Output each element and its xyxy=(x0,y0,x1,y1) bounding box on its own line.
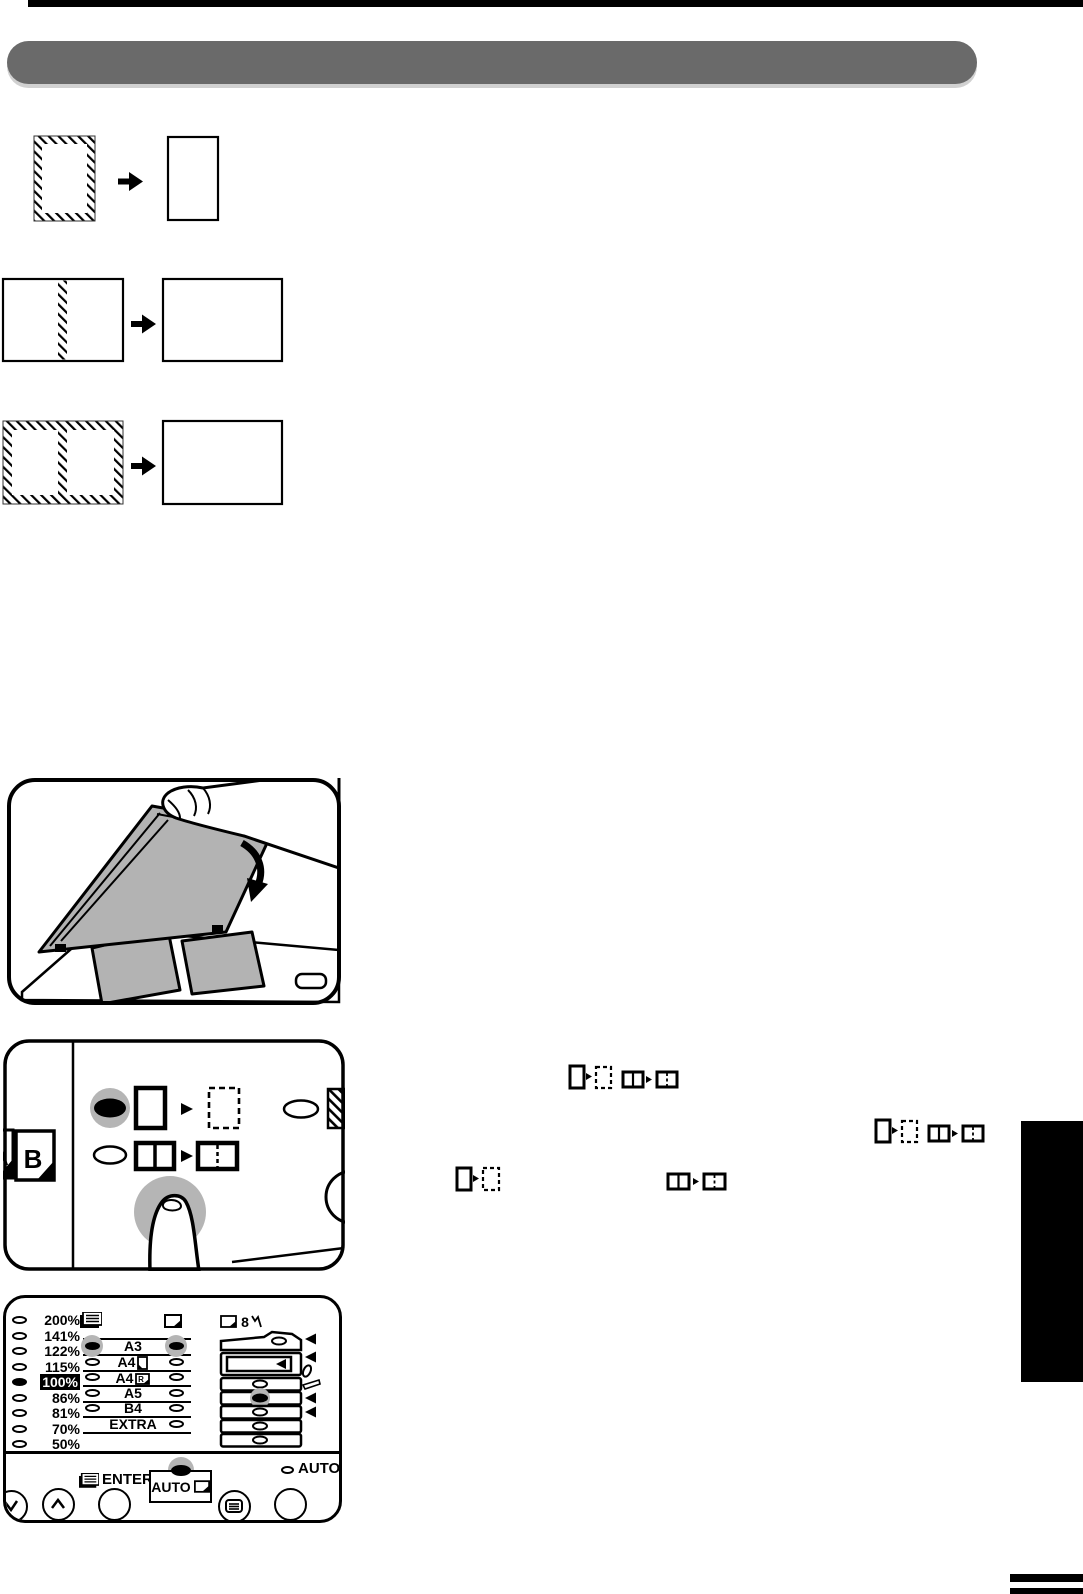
led-indicator-on xyxy=(252,1394,268,1403)
footer-rule-1 xyxy=(1010,1574,1083,1582)
ratio-row-50: 50% xyxy=(12,1436,80,1452)
led-indicator xyxy=(253,1381,267,1388)
cover-closing-illustration xyxy=(7,778,341,1005)
portrait-sheet-icon xyxy=(137,1356,148,1370)
led-indicator xyxy=(12,1440,27,1448)
size-label-b4: B4 xyxy=(98,1401,168,1416)
paper-select-button[interactable] xyxy=(218,1490,251,1523)
arrow-right-icon xyxy=(952,1130,958,1137)
ratio-row-122: 122% xyxy=(12,1343,80,1359)
tray-marker-icon xyxy=(305,1407,316,1418)
ratio-panel: 200% 141% 122% 115% 100% 86% 81% 70% 50% xyxy=(3,1295,342,1523)
arrow-right-icon xyxy=(473,1175,479,1182)
diagram-book-spread-margins xyxy=(3,421,282,504)
original-sheet-front-icon: B xyxy=(16,1131,54,1180)
manual-page: A B xyxy=(0,0,1083,1594)
solid-portrait-page-icon xyxy=(876,1120,890,1142)
led-indicator xyxy=(253,1437,267,1444)
solid-portrait-page-icon xyxy=(570,1066,584,1088)
svg-text:R: R xyxy=(139,1375,145,1384)
led-indicator-on xyxy=(94,1099,126,1118)
inline-mode-icons-3a xyxy=(453,1164,505,1194)
led-indicator xyxy=(169,1420,184,1428)
copy-transform-diagrams xyxy=(0,120,300,520)
led-indicator-off xyxy=(94,1147,126,1164)
dashed-portrait-page-icon xyxy=(902,1121,917,1142)
solid-portrait-page-icon xyxy=(457,1168,471,1190)
panel-divider xyxy=(6,1451,339,1454)
inline-mode-icons-2 xyxy=(872,1116,988,1146)
chevron-down-icon xyxy=(3,1492,25,1520)
solid-portrait-page-icon xyxy=(136,1088,165,1128)
led-indicator xyxy=(169,1358,184,1366)
tray-marker-icon xyxy=(305,1393,316,1404)
led-indicator-on xyxy=(171,1465,191,1476)
chapter-tab xyxy=(1021,1121,1083,1382)
side-handle xyxy=(303,1380,320,1389)
led-indicator xyxy=(281,1466,294,1474)
tray-marker-icon xyxy=(305,1352,316,1363)
auto-ratio-button[interactable] xyxy=(274,1488,307,1521)
size-label-a4: A4 xyxy=(98,1355,168,1370)
section-header-bar xyxy=(7,41,977,84)
led-indicator xyxy=(12,1425,27,1433)
original-document-icon xyxy=(79,1473,99,1488)
led-indicator xyxy=(253,1409,267,1416)
ratio-label: 86% xyxy=(52,1390,80,1406)
size-label-a4r: A4 R xyxy=(98,1371,168,1386)
arrow-icon xyxy=(131,315,156,334)
display-tray xyxy=(221,1353,301,1375)
led-indicator xyxy=(169,1373,184,1381)
ratio-label: 115% xyxy=(45,1359,80,1375)
ratio-row-81: 81% xyxy=(12,1405,80,1421)
bypass-tray xyxy=(221,1332,301,1350)
arrow-icon xyxy=(118,172,143,191)
tray-marker-icon xyxy=(305,1334,316,1345)
copy-paper-icon xyxy=(164,1314,182,1328)
led-indicator xyxy=(253,1423,267,1430)
ratio-row-100-selected: 100% xyxy=(12,1374,80,1390)
led-indicator-off xyxy=(284,1101,318,1118)
inline-mode-icons-1 xyxy=(566,1062,681,1092)
led-indicator xyxy=(12,1347,27,1355)
arrow-right-icon xyxy=(892,1127,898,1134)
ratio-label: 122% xyxy=(44,1343,80,1359)
diagram-book-spread xyxy=(3,279,282,361)
tray-stack-diagram: 8 xyxy=(206,1308,342,1453)
ratio-down-button[interactable] xyxy=(3,1490,28,1523)
ratio-row-70: 70% xyxy=(12,1421,80,1437)
inline-mode-icons-3b xyxy=(664,1170,728,1194)
enter-label: ENTER xyxy=(102,1471,153,1488)
auto-ratio-label: AUTO % xyxy=(298,1460,342,1477)
dashed-portrait-page-icon xyxy=(483,1168,499,1190)
original-document-icon xyxy=(80,1312,102,1328)
size-label-extra: EXTRA xyxy=(98,1417,168,1432)
led-indicator xyxy=(12,1332,27,1340)
ratio-label: 200% xyxy=(44,1312,80,1328)
led-indicator xyxy=(169,1389,184,1397)
arrow-right-icon xyxy=(586,1073,592,1080)
size-label-a5: A5 xyxy=(98,1386,168,1401)
ratio-label: 50% xyxy=(52,1436,80,1452)
led-indicator xyxy=(12,1316,27,1324)
tray-select-icon xyxy=(220,1492,248,1520)
dashed-portrait-page-icon xyxy=(209,1088,239,1128)
table-rule xyxy=(83,1432,191,1434)
led-indicator xyxy=(12,1394,27,1402)
paper-tray-3 xyxy=(221,1406,301,1419)
ratio-label: 70% xyxy=(52,1421,80,1437)
ratio-label: 141% xyxy=(44,1328,80,1344)
led-indicator xyxy=(12,1363,27,1371)
led-indicator xyxy=(272,1338,286,1345)
led-indicator-on xyxy=(169,1342,184,1350)
dashed-portrait-page-icon xyxy=(596,1067,611,1088)
footer-rule-2 xyxy=(1010,1588,1083,1594)
bypass-feed-icon: 8 xyxy=(221,1314,261,1330)
side-led xyxy=(301,1364,312,1378)
diagram-portrait-original xyxy=(34,136,218,221)
enter-button[interactable] xyxy=(98,1488,131,1521)
ratio-row-86: 86% xyxy=(12,1390,80,1406)
size-label-a3: A3 xyxy=(98,1339,168,1354)
paper-tray-5 xyxy=(221,1434,301,1447)
dual-page-mode-panel: A B xyxy=(3,1039,345,1271)
ratio-up-button[interactable] xyxy=(42,1488,75,1521)
chevron-up-icon xyxy=(44,1490,72,1518)
ratio-row-115: 115% xyxy=(12,1359,80,1375)
arrow-right-icon xyxy=(646,1076,652,1083)
led-indicator xyxy=(12,1409,27,1417)
ratio-label: 81% xyxy=(52,1405,80,1421)
ratio-row-141: 141% xyxy=(12,1328,80,1344)
auto-label: AUTO xyxy=(151,1479,190,1495)
paper-tray-4 xyxy=(221,1420,301,1433)
arrow-right-icon xyxy=(693,1178,699,1185)
led-indicator xyxy=(169,1404,184,1412)
a4r-sheet-icon: R xyxy=(135,1373,150,1385)
copy-paper-icon xyxy=(194,1480,210,1493)
sheet-front-letter: B xyxy=(24,1144,43,1174)
top-rule xyxy=(28,0,1083,7)
svg-text:8: 8 xyxy=(241,1314,249,1330)
led-indicator-on xyxy=(12,1378,27,1386)
ratio-row-200: 200% xyxy=(12,1312,80,1328)
arrow-icon xyxy=(131,457,156,476)
ratio-label-selected: 100% xyxy=(40,1374,80,1390)
